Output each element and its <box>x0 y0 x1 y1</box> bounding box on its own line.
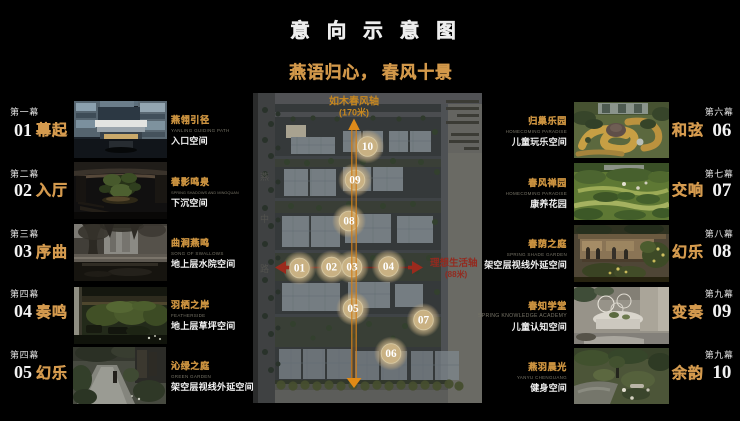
svg-text:路: 路 <box>260 263 269 274</box>
svg-text:08: 08 <box>343 216 355 228</box>
svg-text:03: 03 <box>346 262 358 274</box>
svg-text:01: 01 <box>294 263 306 275</box>
svg-text:(170米): (170米) <box>339 107 369 118</box>
svg-text:燕: 燕 <box>260 171 269 182</box>
svg-text:中: 中 <box>260 213 269 224</box>
svg-text:如木春风轴: 如木春风轴 <box>329 95 379 108</box>
svg-text:(88米): (88米) <box>445 269 468 279</box>
svg-text:06: 06 <box>385 348 397 360</box>
svg-text:09: 09 <box>349 175 361 187</box>
svg-text:02: 02 <box>326 262 338 274</box>
svg-text:05: 05 <box>347 303 359 315</box>
